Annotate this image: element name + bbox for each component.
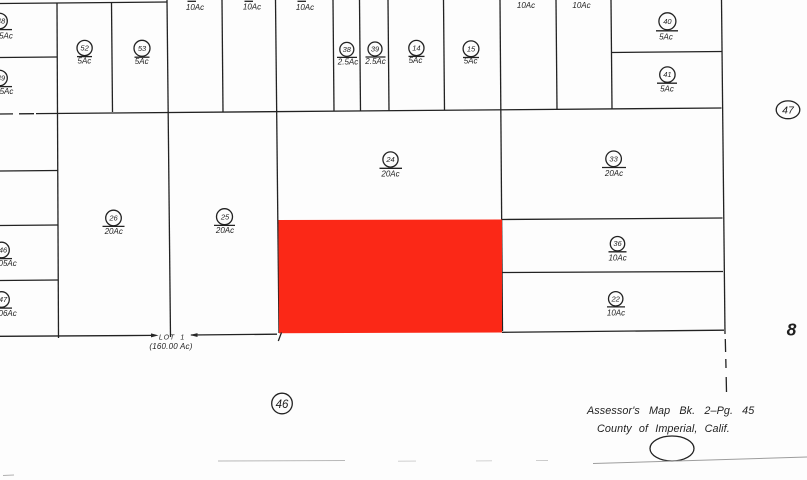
svg-text:.05Ac: .05Ac (0, 259, 17, 268)
svg-text:22: 22 (611, 294, 621, 303)
svg-text:Assessor's Map Bk. 2–Pg. 45: Assessor's Map Bk. 2–Pg. 45 (586, 405, 755, 417)
svg-text:38: 38 (343, 45, 352, 54)
svg-text:(160.00 Ac): (160.00 Ac) (149, 342, 192, 351)
svg-text:10Ac: 10Ac (186, 3, 204, 12)
svg-text:5Ac: 5Ac (135, 57, 149, 66)
svg-text:46: 46 (0, 246, 8, 255)
svg-text:47: 47 (782, 105, 795, 117)
svg-text:47: 47 (0, 295, 8, 304)
svg-text:36: 36 (613, 239, 622, 248)
svg-text:20Ac: 20Ac (104, 227, 123, 236)
svg-text:40: 40 (663, 17, 672, 26)
svg-text:14: 14 (412, 44, 420, 53)
svg-text:8: 8 (787, 320, 797, 340)
svg-text:County of Imperial, Calif.: County of Imperial, Calif. (597, 423, 730, 435)
svg-text:10Ac: 10Ac (607, 309, 625, 318)
svg-text:26: 26 (108, 214, 118, 223)
svg-text:33: 33 (609, 154, 618, 163)
svg-text:5Ac: 5Ac (409, 56, 423, 65)
svg-text:46: 46 (276, 399, 289, 411)
svg-text:LOT 1: LOT 1 (159, 335, 185, 342)
svg-text:25: 25 (220, 213, 230, 222)
svg-text:2.5Ac: 2.5Ac (337, 58, 358, 67)
svg-text:10Ac: 10Ac (243, 3, 261, 12)
svg-text:15: 15 (467, 44, 476, 53)
svg-text:20Ac: 20Ac (215, 226, 234, 235)
svg-text:5Ac: 5Ac (78, 57, 92, 66)
svg-text:20Ac: 20Ac (604, 169, 623, 178)
svg-text:.06Ac: .06Ac (0, 309, 17, 318)
svg-text:5Ac: 5Ac (464, 57, 478, 66)
svg-text:48: 48 (0, 17, 6, 26)
svg-text:24: 24 (385, 155, 394, 164)
svg-text:49: 49 (0, 74, 6, 83)
svg-text:10Ac: 10Ac (608, 254, 626, 263)
svg-text:2.5Ac: 2.5Ac (364, 57, 385, 66)
svg-text:5Ac: 5Ac (660, 85, 674, 94)
svg-text:20Ac: 20Ac (380, 170, 399, 179)
svg-text:10Ac: 10Ac (572, 1, 590, 10)
svg-text:41: 41 (663, 70, 671, 79)
svg-text:39: 39 (371, 45, 380, 54)
svg-text:53: 53 (138, 44, 147, 53)
svg-text:52: 52 (80, 44, 89, 53)
svg-text:5Ac: 5Ac (659, 33, 673, 42)
svg-text:5Ac: 5Ac (0, 32, 13, 41)
svg-text:5Ac: 5Ac (0, 87, 13, 96)
svg-text:10Ac: 10Ac (296, 3, 314, 12)
svg-text:10Ac: 10Ac (517, 1, 535, 10)
